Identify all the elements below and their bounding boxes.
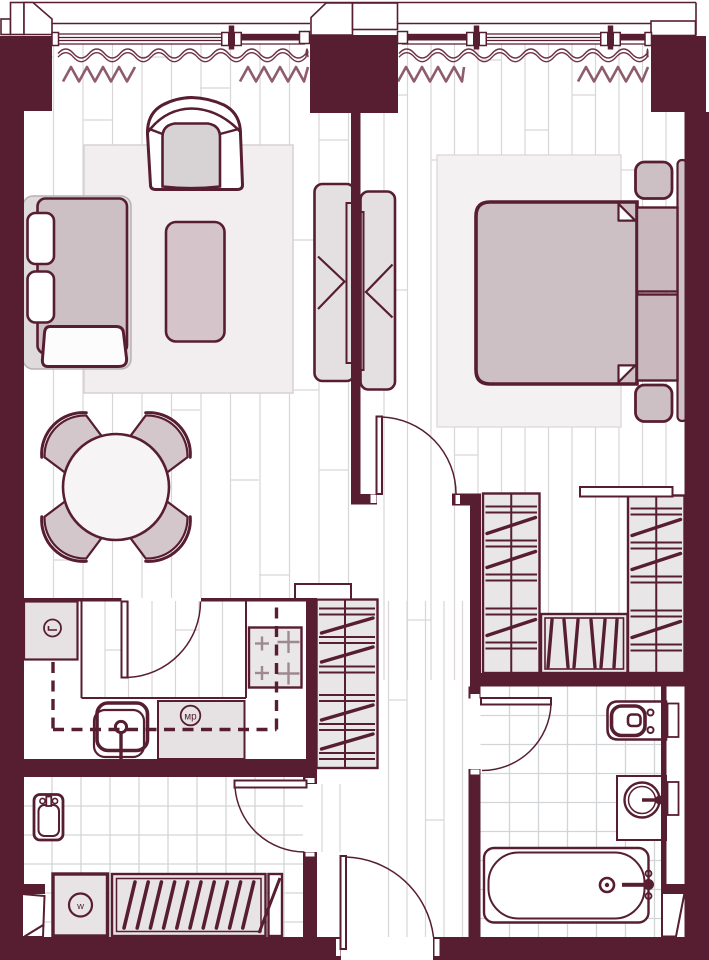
svg-text:мр: мр xyxy=(184,712,197,723)
svg-text:w: w xyxy=(76,901,84,912)
